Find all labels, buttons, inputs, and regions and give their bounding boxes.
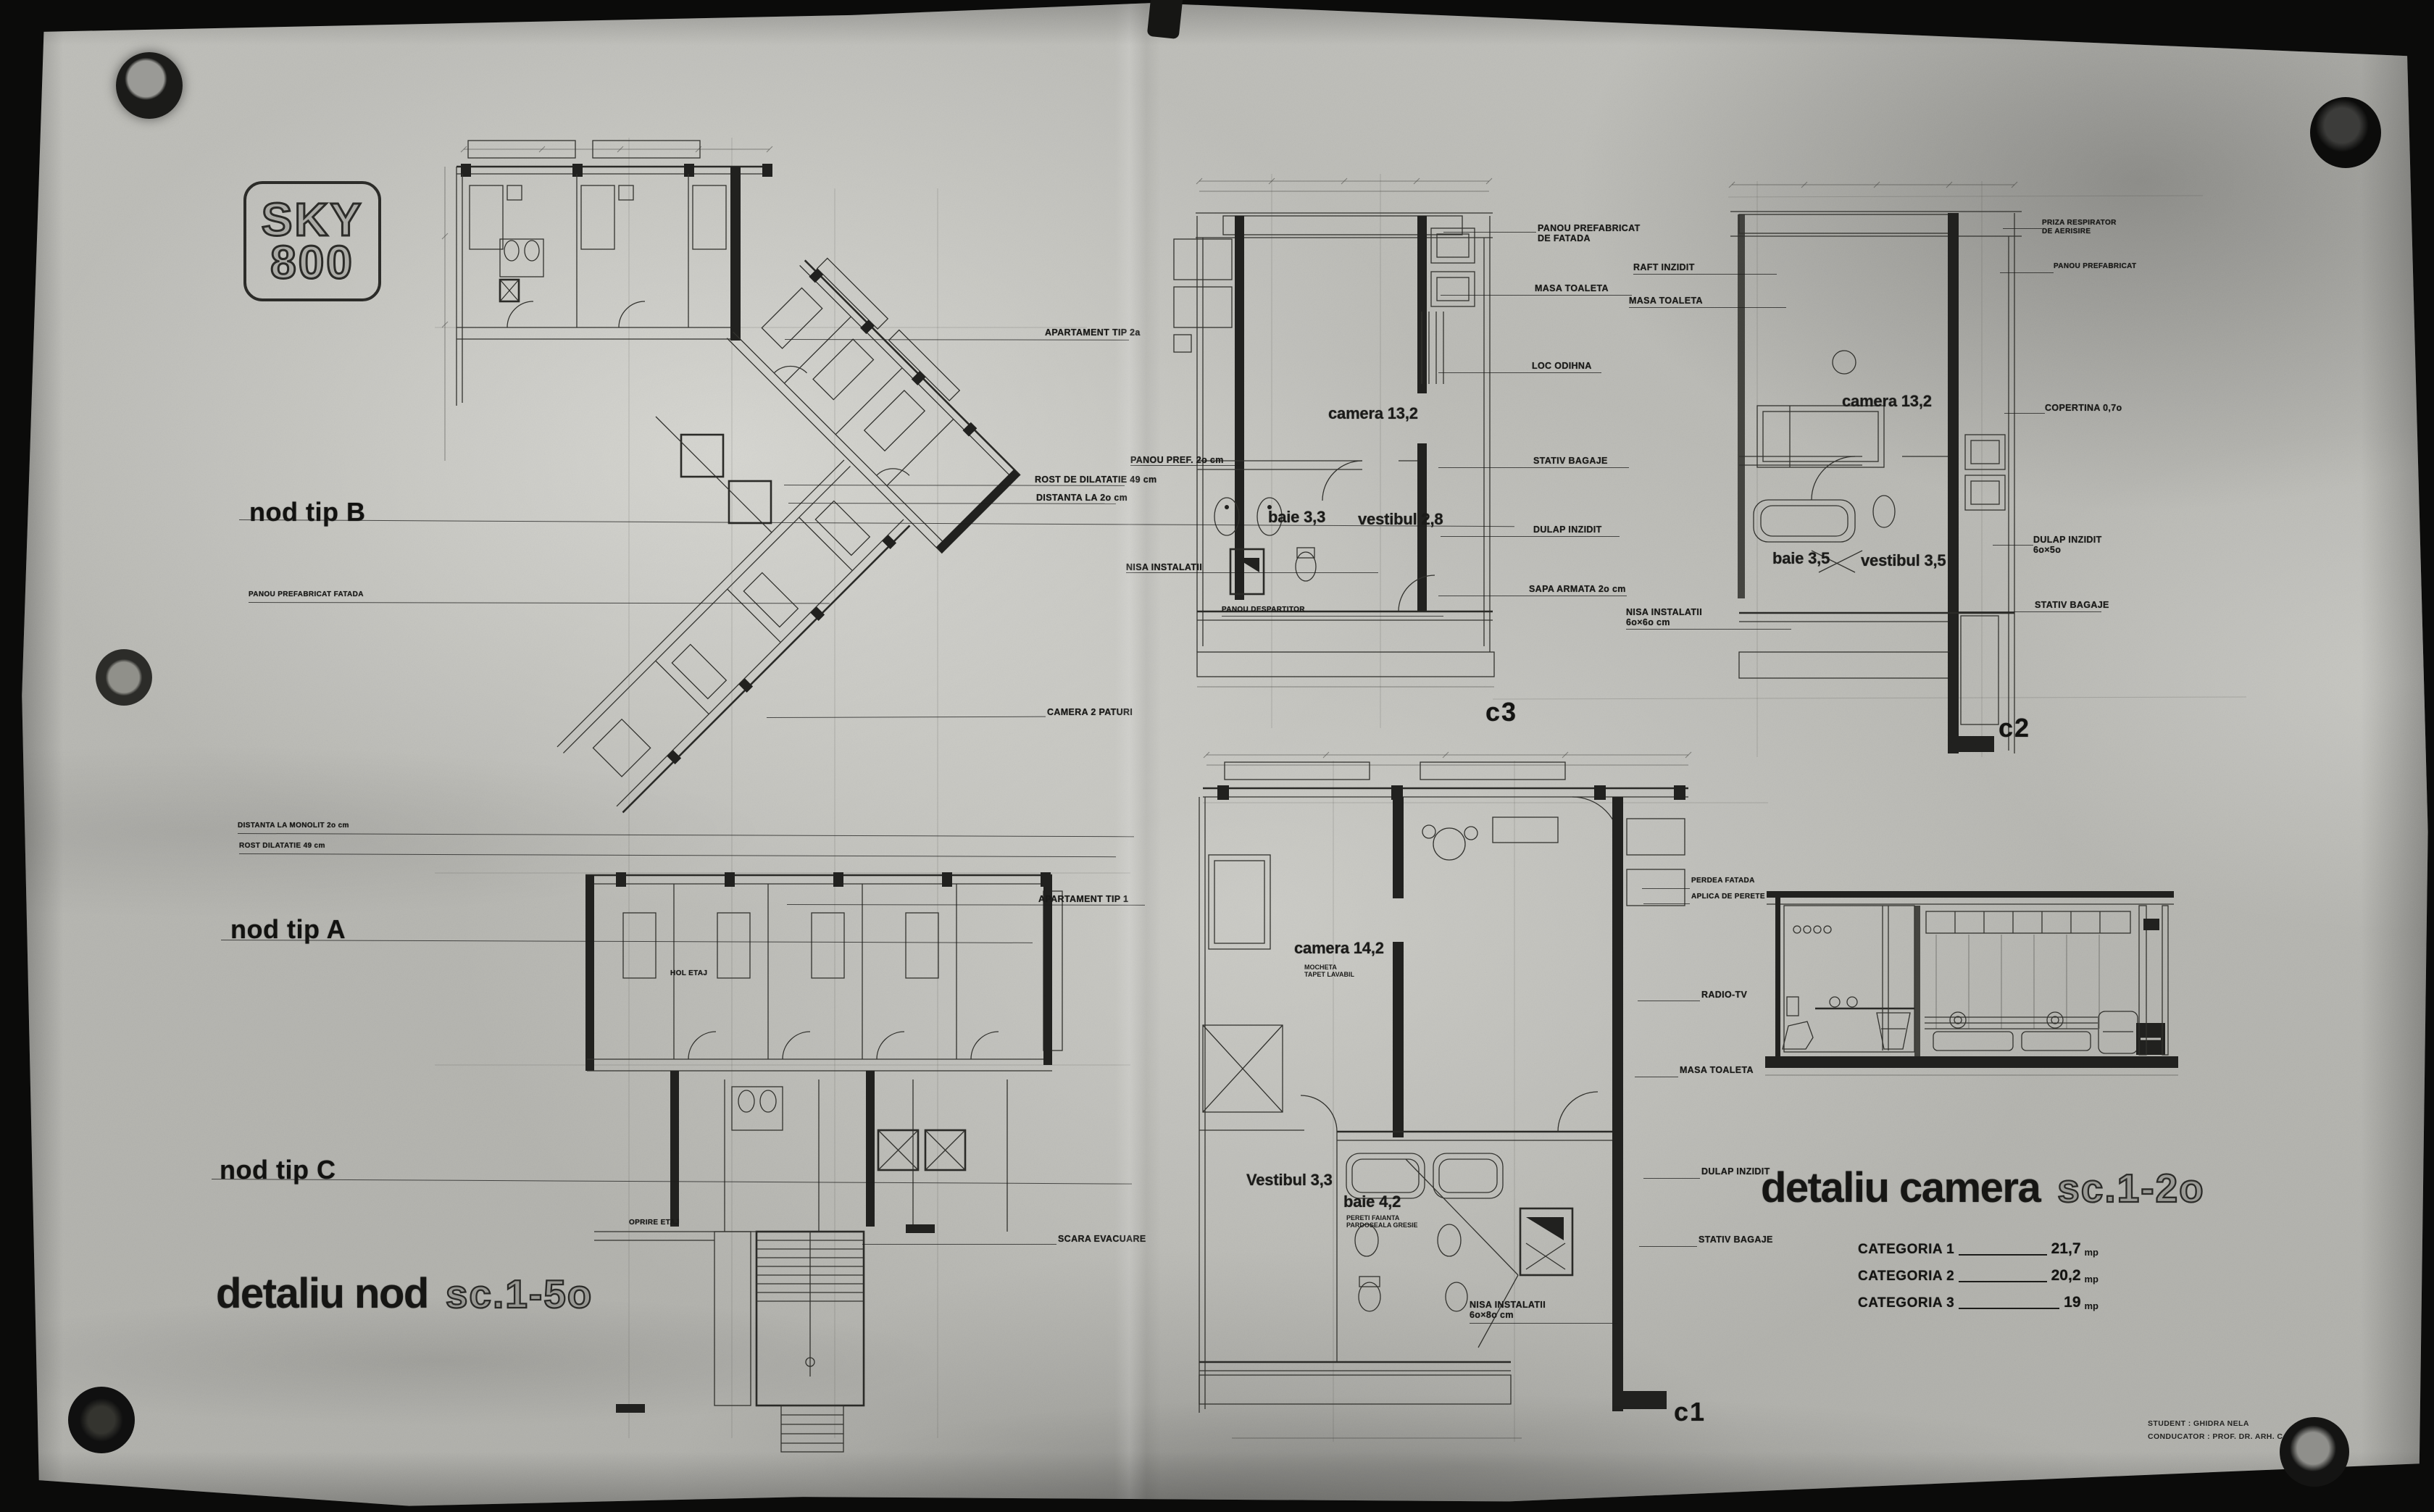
- category-label: CATEGORIA 1: [1858, 1242, 1954, 1258]
- apart-1-label: APARTAMENT TIP 1: [1038, 894, 1128, 904]
- title-detaliu-nod: detaliu nod sc.1-5o: [216, 1269, 593, 1318]
- masa-toaleta-c2-label: MASA TOALETA: [1629, 296, 1703, 306]
- dulap-inzidit-c3-leader-line: [1441, 536, 1620, 537]
- masa-toaleta-c1-leader-line: [1635, 1077, 1678, 1077]
- blueprint-photo: SKY 800 detaliu nod sc.1-5o detaliu came…: [0, 0, 2434, 1512]
- c2-baie-label: baie 3,5: [1772, 549, 1830, 567]
- panou-fatada-left-label: PANOU PREFABRICAT FATADA: [249, 590, 364, 599]
- punch-hole-top-right: [2310, 97, 2381, 168]
- copertina-leader-line: [2004, 413, 2045, 414]
- loc-odihna-label: LOC ODIHNA: [1532, 361, 1592, 371]
- dist-monolit-label: DISTANTA LA MONOLIT 2o cm: [238, 822, 349, 830]
- paper-clip: [1147, 0, 1184, 39]
- sec-c1-label: c1: [1674, 1397, 1706, 1427]
- perdea-fatada-leader-line: [1642, 888, 1690, 889]
- category-label: CATEGORIA 3: [1858, 1295, 1954, 1311]
- c1-vestibul-label: Vestibul 3,3: [1246, 1171, 1333, 1189]
- category-unit: mp: [2085, 1300, 2099, 1311]
- nisa-c1-label: NISA INSTALATII 6o×8o cm: [1470, 1300, 1546, 1321]
- nisa-c2-leader-line: [1626, 629, 1791, 630]
- nisa-c3-leader-line: [1126, 572, 1378, 573]
- title-nod-text: detaliu nod: [216, 1269, 428, 1318]
- category-row: CATEGORIA 1 21,7 mp: [1858, 1240, 2099, 1258]
- category-leader-line: [1959, 1308, 2059, 1309]
- category-leader-line: [1959, 1254, 2046, 1256]
- scara-evacuare-label: SCARA EVACUARE: [1058, 1234, 1146, 1244]
- c3-camera-label: camera 13,2: [1328, 404, 1418, 422]
- panou-pref-fatada-c3-label: PANOU PREFABRICAT DE FATADA: [1538, 223, 1641, 244]
- category-unit: mp: [2085, 1274, 2099, 1285]
- panou-pref-20-leader-line: [1130, 465, 1241, 466]
- title-nod-scale: sc.1-5o: [446, 1271, 593, 1317]
- raft-inzidit-label: RAFT INZIDIT: [1633, 262, 1695, 272]
- punch-hole-left-middle: [96, 649, 152, 706]
- c1-camera-label: camera 14,2: [1294, 939, 1384, 957]
- c2-camera-label: camera 13,2: [1842, 392, 1932, 410]
- panou-despartitor-label: PANOU DESPARTITOR: [1222, 606, 1305, 614]
- dulap-inzidit-c2-label: DULAP INZIDIT 6o×5o: [2033, 535, 2102, 556]
- c3-vestibul-label: vestibul 2,8: [1358, 510, 1443, 528]
- masa-toaleta-c3-leader-line: [1441, 295, 1632, 296]
- hol-etaj-label: HOL ETAJ: [670, 969, 707, 978]
- masa-toaleta-c1-label: MASA TOALETA: [1680, 1065, 1754, 1075]
- category-unit: mp: [2085, 1247, 2099, 1258]
- sapa-armata-leader-line: [1438, 596, 1627, 596]
- punch-hole-top-left: [116, 52, 183, 119]
- stativ-bagaje-c1-label: STATIV BAGAJE: [1699, 1235, 1773, 1245]
- punch-hole-bottom-right: [2280, 1417, 2349, 1487]
- dulap-inzidit-c1-label: DULAP INZIDIT: [1701, 1166, 1770, 1177]
- rost-dilatatie-49-label: ROST DE DILATATIE 49 cm: [1035, 475, 1157, 485]
- title-camera-text: detaliu camera: [1761, 1164, 2040, 1212]
- panou-pref-fatada-c3-leader-line: [1443, 232, 1536, 233]
- stativ-bagaje-c1-leader-line: [1639, 1246, 1697, 1247]
- dulap-inzidit-c1-leader-line: [1643, 1178, 1700, 1179]
- c1-baie-label: baie 4,2: [1343, 1193, 1401, 1211]
- stativ-bagaje-c3-leader-line: [1438, 467, 1629, 468]
- sec-c3-label: c3: [1485, 697, 1517, 727]
- category-value: 19: [2064, 1294, 2080, 1311]
- title-detaliu-camera: detaliu camera sc.1-2o: [1761, 1164, 2205, 1212]
- panou-pref-c2-label: PANOU PREFABRICAT: [2054, 262, 2136, 271]
- punch-hole-bottom-left: [68, 1387, 135, 1453]
- priza-aerisire-leader-line: [2003, 228, 2042, 229]
- stativ-bagaje-c2-leader-line: [1956, 611, 2101, 612]
- sapa-armata-label: SAPA ARMATA 2o cm: [1529, 584, 1626, 594]
- loc-odihna-leader-line: [1438, 372, 1601, 373]
- category-value: 21,7: [2051, 1240, 2081, 1258]
- c1-camera-note-label: MOCHETA TAPET LAVABIL: [1304, 964, 1354, 979]
- category-row: CATEGORIA 2 20,2 mp: [1858, 1267, 2099, 1285]
- camera-2-paturi-label: CAMERA 2 PATURI: [1047, 707, 1133, 717]
- category-label: CATEGORIA 2: [1858, 1269, 1954, 1285]
- c3-baie-label: baie 3,3: [1268, 508, 1325, 526]
- scara-evacuare-leader-line: [862, 1244, 1056, 1245]
- radio-tv-leader-line: [1638, 1001, 1700, 1001]
- category-row: CATEGORIA 3 19 mp: [1858, 1294, 2099, 1311]
- aplica-perete-leader-line: [1643, 903, 1690, 904]
- nod-b-label: nod tip B: [249, 497, 365, 527]
- dulap-inzidit-c2-leader-line: [1993, 545, 2033, 546]
- panou-despartitor-leader-line: [1222, 616, 1443, 617]
- nisa-c2-label: NISA INSTALATII 6o×6o cm: [1626, 607, 1702, 628]
- categories-table: CATEGORIA 1 21,7 mp CATEGORIA 2 20,2 mp …: [1858, 1240, 2099, 1321]
- panou-pref-20-label: PANOU PREF. 2o cm: [1130, 455, 1224, 465]
- logo-line1: SKY: [262, 199, 364, 241]
- oprire-etaj-label: OPRIRE ETAJ: [629, 1219, 680, 1227]
- dulap-inzidit-c3-label: DULAP INZIDIT: [1533, 525, 1602, 535]
- masa-toaleta-c2-leader-line: [1629, 307, 1786, 308]
- aplica-perete-label: APLICA DE PERETE: [1691, 893, 1765, 901]
- nod-c-label: nod tip C: [220, 1155, 335, 1185]
- sky-800-logo: SKY 800: [243, 181, 381, 301]
- copertina-label: COPERTINA 0,7o: [2045, 403, 2122, 413]
- radio-tv-label: RADIO-TV: [1701, 990, 1747, 1000]
- sec-c2-label: c2: [1999, 713, 2030, 743]
- nisa-c1-leader-line: [1470, 1323, 1617, 1324]
- panou-pref-c2-leader-line: [2000, 272, 2054, 273]
- category-leader-line: [1959, 1281, 2046, 1282]
- perdea-fatada-label: PERDEA FATADA: [1691, 877, 1755, 885]
- priza-aerisire-label: PRIZA RESPIRATOR DE AERISIRE: [2042, 219, 2117, 235]
- apart-2a-label: APARTAMENT TIP 2a: [1045, 327, 1141, 338]
- raft-inzidit-leader-line: [1633, 274, 1777, 275]
- stativ-bagaje-c2-label: STATIV BAGAJE: [2035, 600, 2109, 610]
- category-value: 20,2: [2051, 1267, 2081, 1285]
- c1-baie-note-label: PERETI FAIANTA PARDOSEALA GRESIE: [1346, 1214, 1418, 1229]
- distanta-20-label: DISTANTA LA 2o cm: [1036, 493, 1128, 503]
- c2-vestibul-label: vestibul 3,5: [1861, 551, 1946, 569]
- logo-line2: 800: [270, 241, 354, 284]
- rost-dilatatie-left-label: ROST DILATATIE 49 cm: [239, 842, 325, 851]
- masa-toaleta-c3-label: MASA TOALETA: [1535, 283, 1609, 293]
- stativ-bagaje-c3-label: STATIV BAGAJE: [1533, 456, 1608, 466]
- title-camera-scale: sc.1-2o: [2057, 1165, 2205, 1211]
- nisa-c3-label: NISA INSTALATII: [1126, 562, 1202, 572]
